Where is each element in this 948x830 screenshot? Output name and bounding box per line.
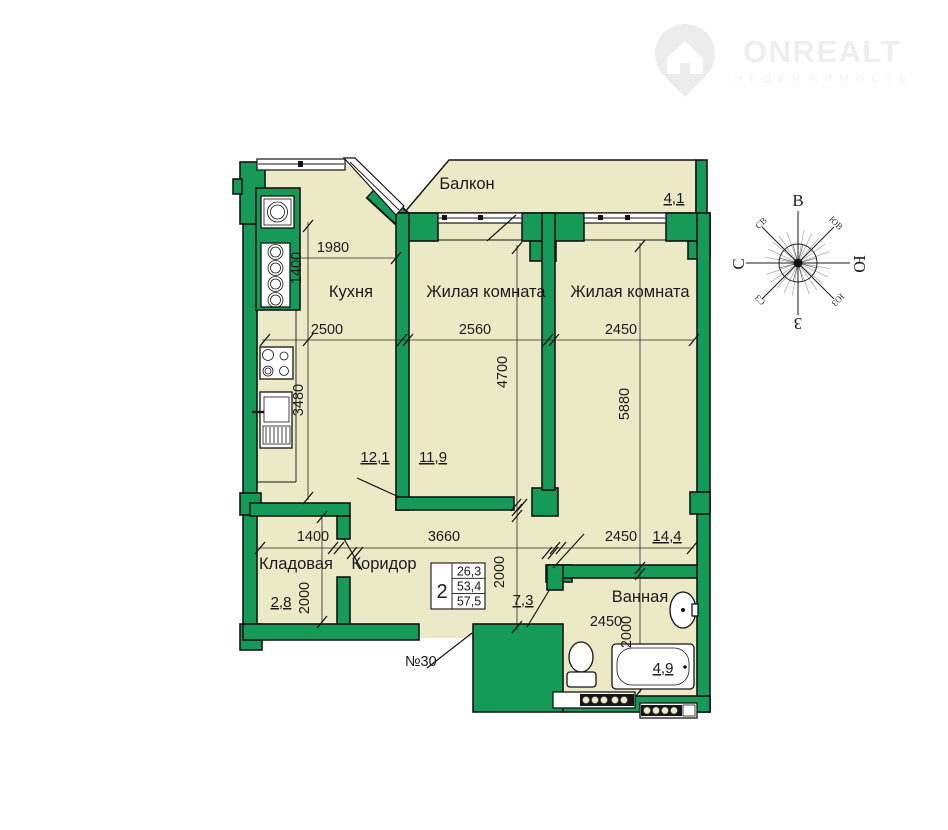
corridor-area: 7,3 [513,592,534,609]
stove-icon [260,347,293,379]
apartment-info-table: 2 26,3 53,4 57,5 [431,563,485,609]
dim-kitchen-w: 2500 [311,322,343,338]
toilet-icon [569,642,593,672]
apartment-number: №30 [405,654,437,670]
dim-storage-w: 1400 [297,529,329,545]
table-total-area: 57,5 [457,595,481,609]
dim-bathroom-h: 2000 [619,616,635,648]
appliance-column-icon [261,243,290,307]
table-area: 53,4 [457,580,481,594]
living1-area: 11,9 [419,449,447,466]
dim-storage-h: 2000 [297,582,313,614]
table-living-area: 26,3 [457,565,481,579]
compass-sw: ЮЗ [829,292,846,309]
dim-living1-h: 4700 [495,356,511,388]
kitchen-label: Кухня [329,283,373,301]
floorplan-canvas: ONREALT НЕДВИЖИМОСТЬ [0,0,948,830]
washing-machine-icon [261,196,294,228]
compass-ne: СВ [753,215,769,231]
dim-bathroom-w: 2450 [590,614,622,630]
living2-label: Жилая комната [570,283,690,301]
compass-nw: СЗ [752,292,767,307]
logo-title: ONREALT [743,34,901,69]
dim-kitchen-top: 1980 [317,240,349,256]
bathroom-label: Ванная [612,588,669,606]
dim-living2-w-lower: 2450 [605,529,637,545]
bathroom-area: 4,9 [653,660,674,677]
compass-rose-icon: В Ю З С СВ ЮВ ЮЗ СЗ [729,191,869,333]
corridor-label: Коридор [351,555,416,573]
logo-subtitle: НЕДВИЖИМОСТЬ [734,73,913,85]
dim-corridor-w: 3660 [428,529,460,545]
balcony-label: Балкон [439,175,494,193]
living2-area: 14,4 [652,528,681,545]
dim-kitchen-lower-h: 3480 [291,384,307,416]
kitchen-area: 12,1 [360,449,389,466]
compass-se: ЮВ [827,214,845,232]
dim-kitchen-upper-h: 1400 [289,252,305,284]
living1-label: Жилая комната [426,283,546,301]
dim-corridor-h: 2000 [492,556,508,588]
table-rooms-count: 2 [436,581,447,603]
floorplan-page: ONREALT НЕДВИЖИМОСТЬ [0,0,948,830]
storage-area: 2,8 [271,594,292,611]
dim-living2-h: 5880 [617,388,633,420]
kitchen-sink-icon [260,392,292,448]
compass-north: С [729,258,748,269]
storage-label: Кладовая [259,555,333,573]
dim-living1-w: 2560 [459,322,491,338]
compass-west: З [794,314,803,333]
balcony-area: 4,1 [664,190,685,207]
dim-living2-w: 2450 [605,322,637,338]
compass-east: В [792,191,803,210]
onrealt-logo: ONREALT НЕДВИЖИМОСТЬ [655,24,914,97]
compass-south: Ю [850,255,869,272]
